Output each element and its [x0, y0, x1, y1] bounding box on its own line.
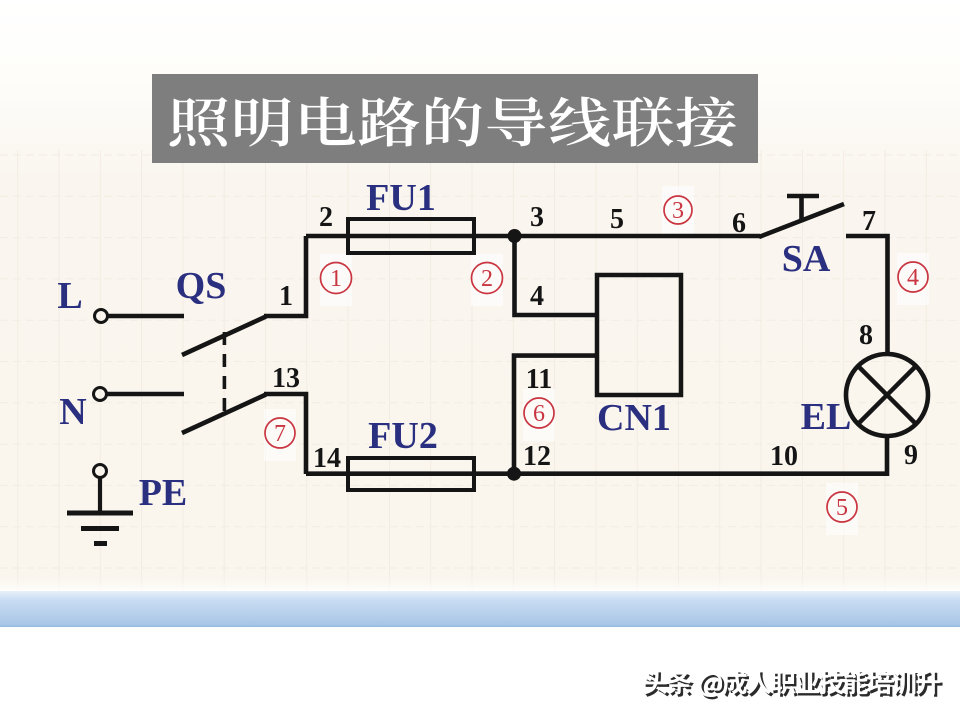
svg-text:14: 14	[313, 443, 341, 474]
svg-text:7: 7	[862, 206, 876, 237]
svg-text:3: 3	[530, 202, 544, 233]
svg-text:FU1: FU1	[366, 177, 436, 219]
svg-text:FU2: FU2	[368, 415, 438, 457]
svg-text:2: 2	[481, 266, 493, 292]
svg-text:4: 4	[530, 281, 544, 312]
svg-text:12: 12	[523, 441, 551, 472]
svg-text:1: 1	[330, 266, 342, 292]
svg-text:6: 6	[732, 208, 746, 239]
svg-text:L: L	[57, 275, 82, 317]
svg-text:11: 11	[526, 364, 552, 395]
svg-text:4: 4	[907, 265, 919, 291]
svg-text:PE: PE	[139, 472, 188, 514]
svg-text:SA: SA	[782, 238, 831, 280]
svg-text:7: 7	[274, 421, 286, 447]
svg-text:10: 10	[770, 441, 798, 472]
svg-text:N: N	[59, 391, 86, 433]
svg-text:5: 5	[836, 495, 848, 521]
svg-text:13: 13	[272, 363, 300, 394]
svg-text:QS: QS	[176, 265, 227, 307]
svg-text:3: 3	[672, 198, 684, 224]
svg-text:1: 1	[279, 281, 293, 312]
svg-text:8: 8	[859, 320, 873, 351]
svg-text:EL: EL	[801, 396, 852, 438]
svg-text:9: 9	[904, 440, 918, 471]
svg-text:5: 5	[610, 204, 624, 235]
svg-text:6: 6	[533, 401, 545, 427]
svg-text:2: 2	[319, 202, 333, 233]
svg-text:CN1: CN1	[597, 397, 671, 439]
